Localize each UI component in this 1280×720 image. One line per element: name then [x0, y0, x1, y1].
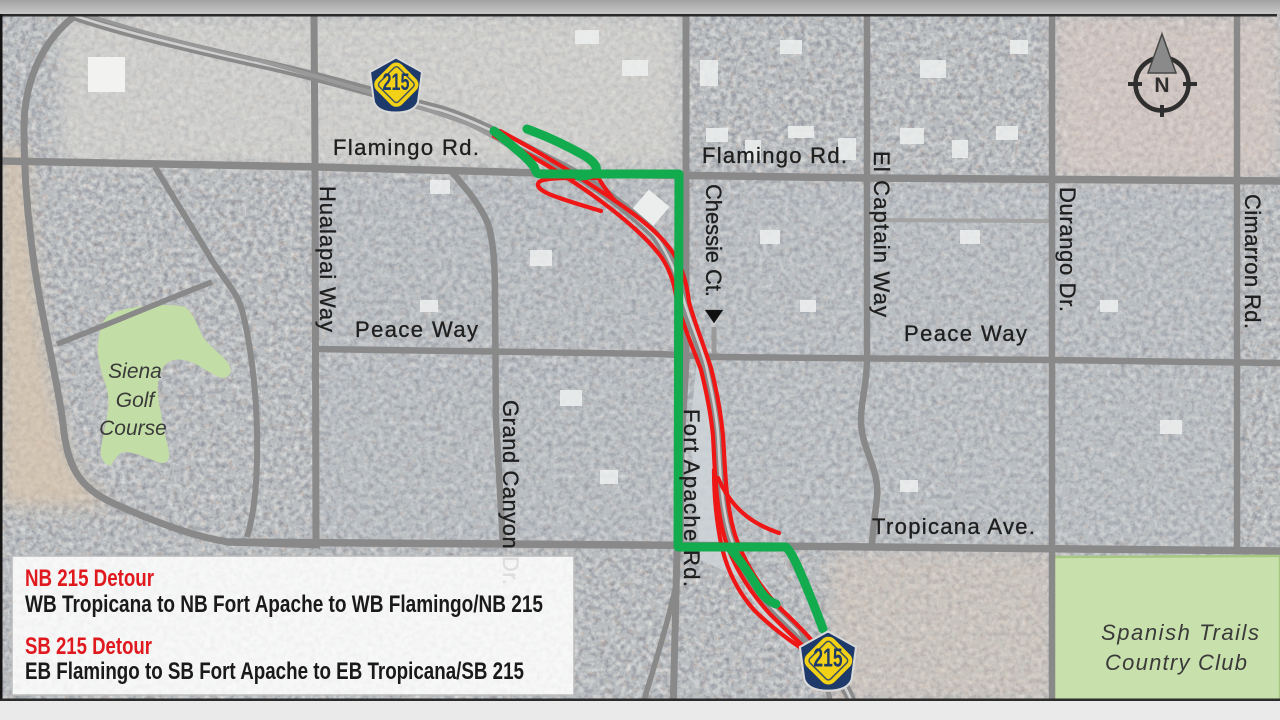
svg-text:WB Tropicana to NB Fort Apache: WB Tropicana to NB Fort Apache to WB Fla… [25, 591, 543, 618]
svg-text:Cimarron Rd.: Cimarron Rd. [1240, 194, 1265, 329]
svg-text:Tropicana Ave.: Tropicana Ave. [872, 514, 1035, 539]
svg-text:215: 215 [813, 644, 842, 672]
svg-text:El Captain Way: El Captain Way [869, 151, 894, 317]
svg-text:EB Flamingo to SB Fort Apache: EB Flamingo to SB Fort Apache to EB Trop… [25, 658, 524, 685]
svg-text:SB 215 Detour: SB 215 Detour [25, 633, 152, 660]
svg-text:Course: Course [99, 417, 167, 440]
svg-text:Country Club: Country Club [1105, 650, 1247, 675]
svg-text:Chessie Ct.: Chessie Ct. [701, 184, 726, 297]
svg-text:Golf: Golf [116, 389, 157, 412]
svg-text:Durango Dr.: Durango Dr. [1055, 187, 1080, 312]
svg-text:Fort Apache Rd.: Fort Apache Rd. [679, 409, 704, 587]
svg-text:N: N [1154, 74, 1169, 97]
svg-text:Hualapai Way: Hualapai Way [315, 186, 340, 332]
svg-text:215: 215 [383, 69, 410, 96]
svg-text:Peace Way: Peace Way [355, 317, 478, 342]
svg-text:NB 215 Detour: NB 215 Detour [25, 565, 154, 592]
svg-text:Peace Way: Peace Way [904, 321, 1027, 346]
svg-text:Spanish Trails: Spanish Trails [1101, 620, 1259, 645]
svg-text:Siena: Siena [108, 360, 162, 383]
